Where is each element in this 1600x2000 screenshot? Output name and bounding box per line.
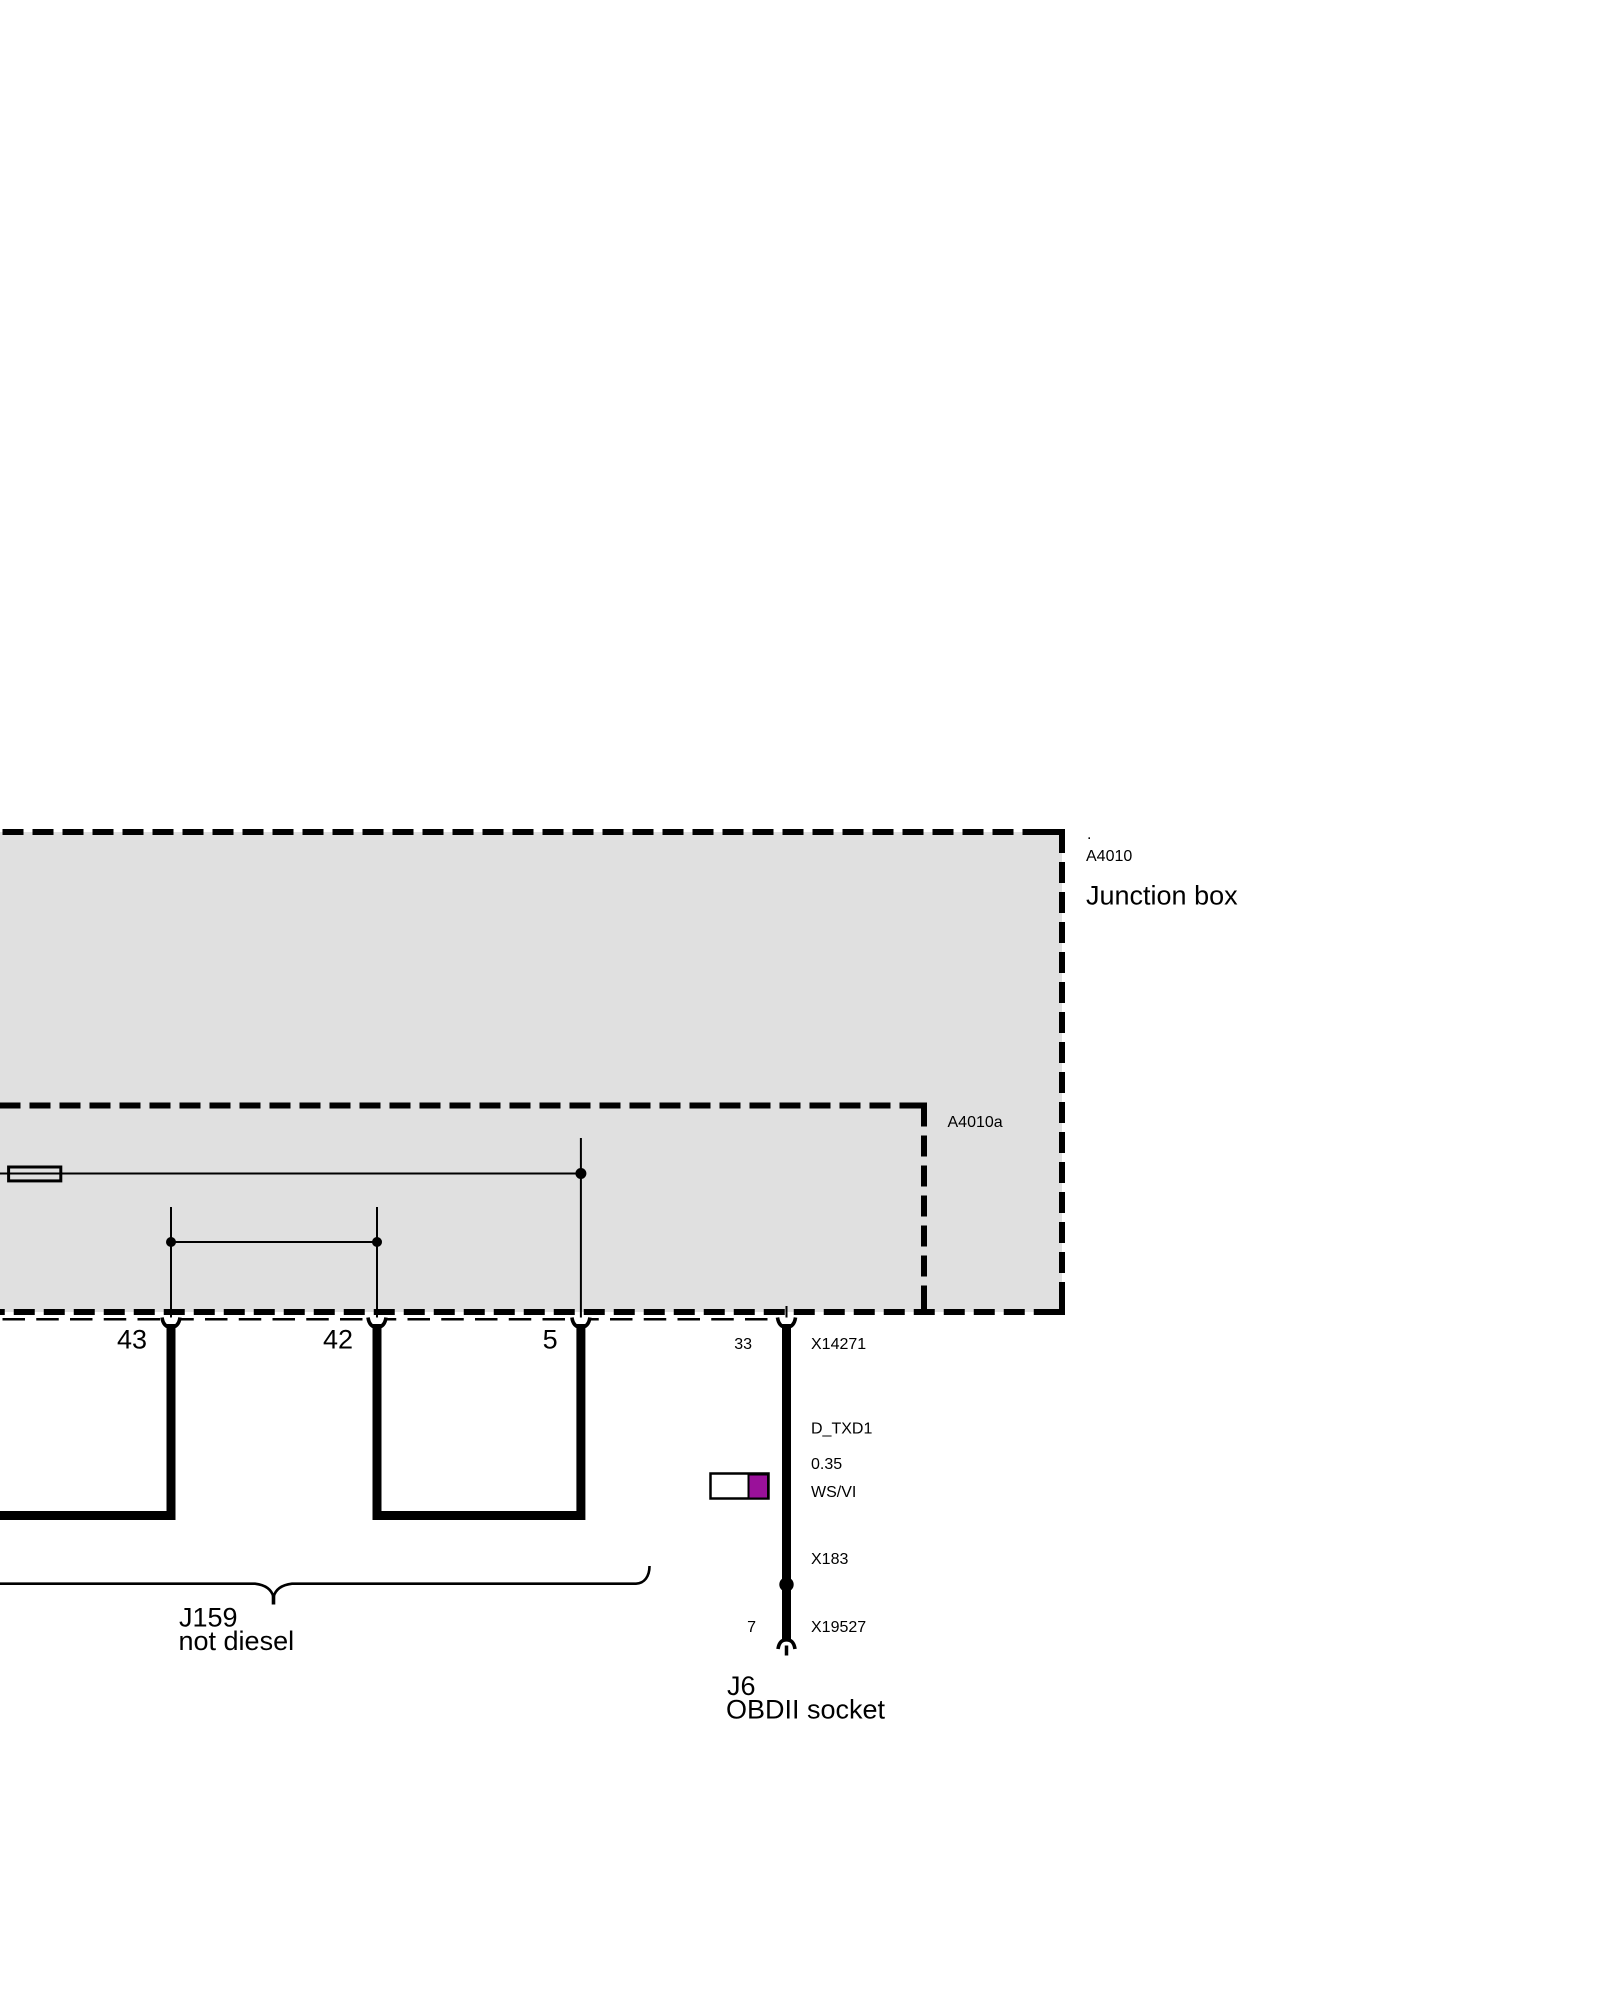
svg-text:A4010a: A4010a [948,1114,1003,1131]
svg-text:42: 42 [323,1325,353,1355]
svg-text:.: . [1087,826,1091,843]
svg-text:X19527: X19527 [811,1619,866,1636]
svg-text:X14271: X14271 [811,1336,866,1353]
svg-text:A4010: A4010 [1086,848,1132,865]
svg-text:WS/VI: WS/VI [811,1484,856,1501]
svg-text:not diesel: not diesel [179,1626,295,1656]
svg-text:D_TXD1: D_TXD1 [811,1421,872,1438]
svg-text:Junction box: Junction box [1086,881,1238,911]
svg-text:43: 43 [117,1325,147,1355]
svg-text:X183: X183 [811,1551,848,1568]
svg-text:33: 33 [734,1336,752,1353]
svg-text:7: 7 [747,1619,756,1636]
svg-text:OBDII socket: OBDII socket [726,1695,886,1725]
svg-text:0.35: 0.35 [811,1456,842,1473]
svg-text:5: 5 [543,1325,558,1355]
